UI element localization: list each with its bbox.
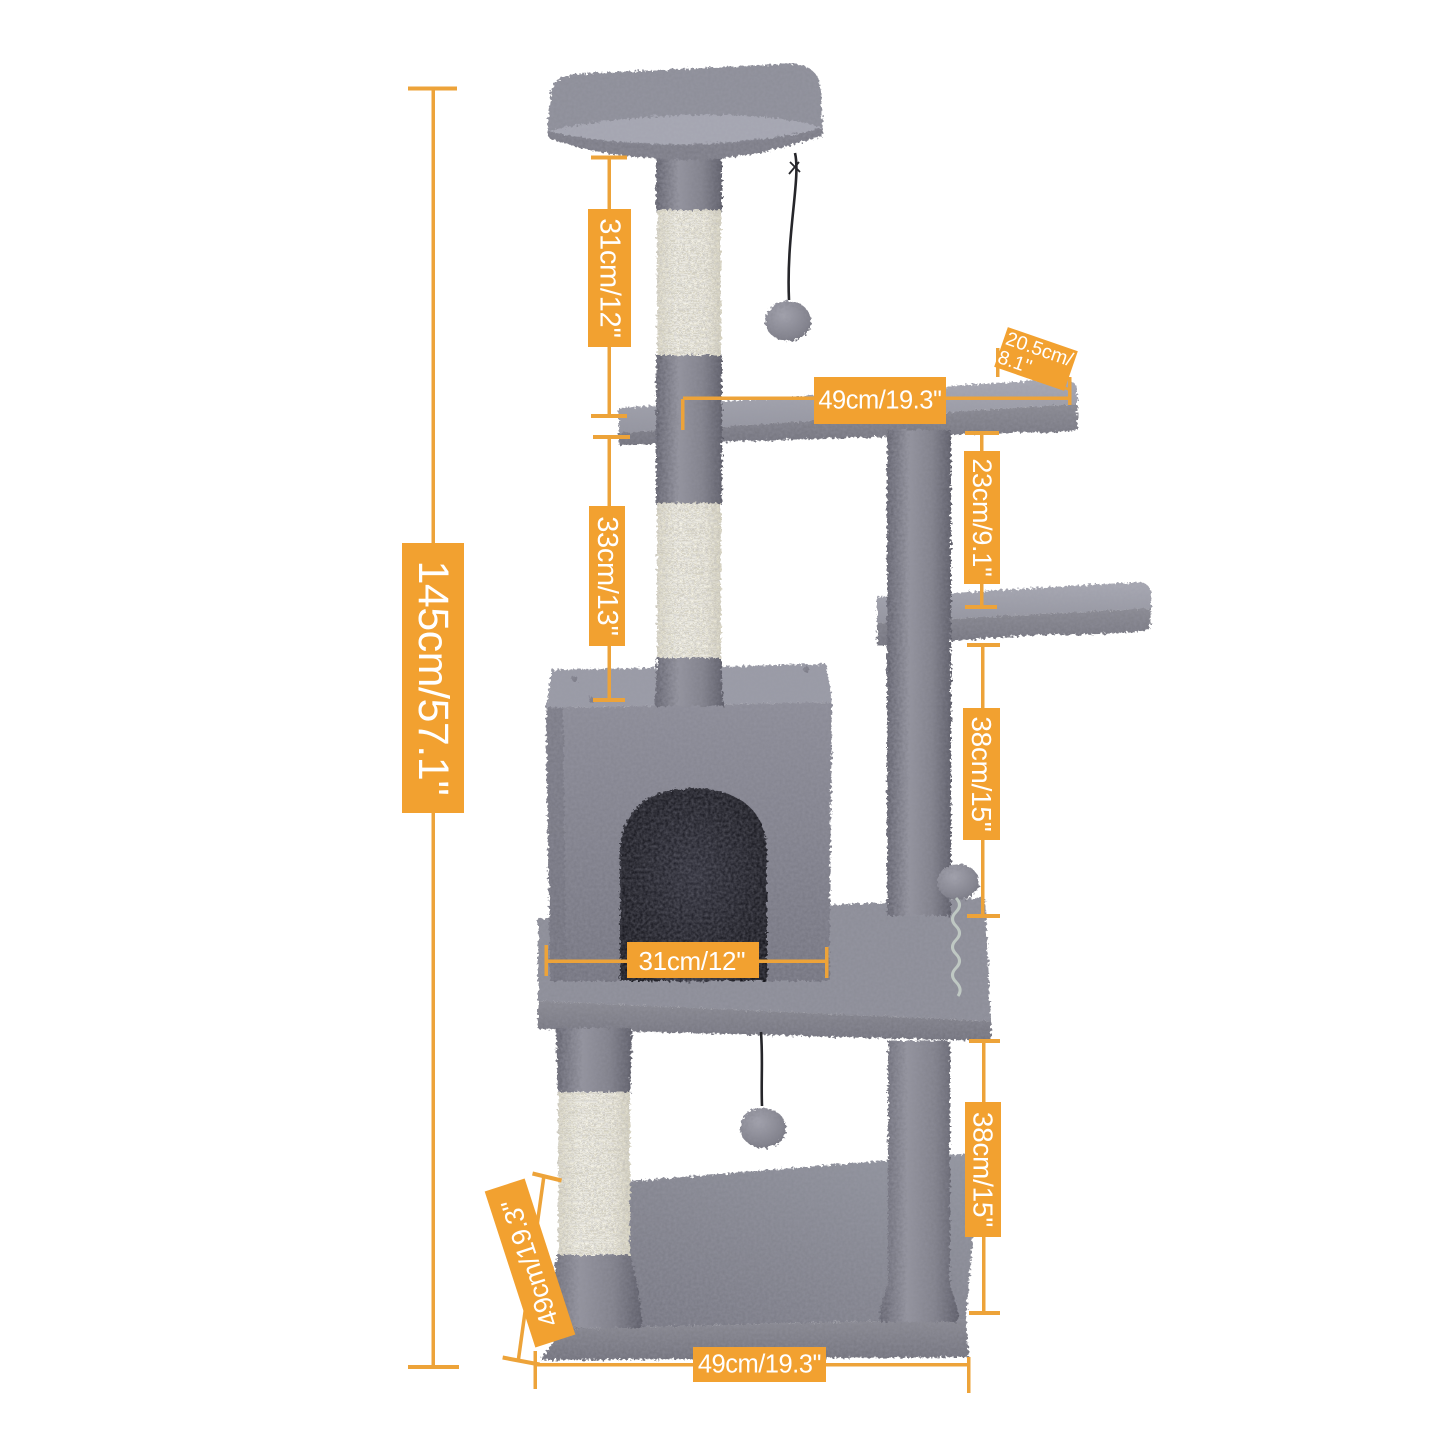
svg-text:31cm/12'': 31cm/12'': [594, 218, 626, 338]
svg-text:33cm/13'': 33cm/13'': [591, 516, 623, 636]
svg-text:31cm/12'': 31cm/12'': [639, 946, 746, 976]
svg-text:49cm/19.3'': 49cm/19.3'': [698, 1351, 821, 1379]
svg-text:38cm/15'': 38cm/15'': [966, 716, 997, 831]
svg-text:49cm/19.3'': 49cm/19.3'': [495, 1196, 564, 1331]
svg-text:23cm/9.1'': 23cm/9.1'': [967, 458, 997, 576]
svg-text:145cm/57.1'': 145cm/57.1'': [409, 560, 457, 795]
svg-text:38cm/15'': 38cm/15'': [968, 1112, 999, 1227]
svg-text:49cm/19.3'': 49cm/19.3'': [818, 387, 941, 415]
